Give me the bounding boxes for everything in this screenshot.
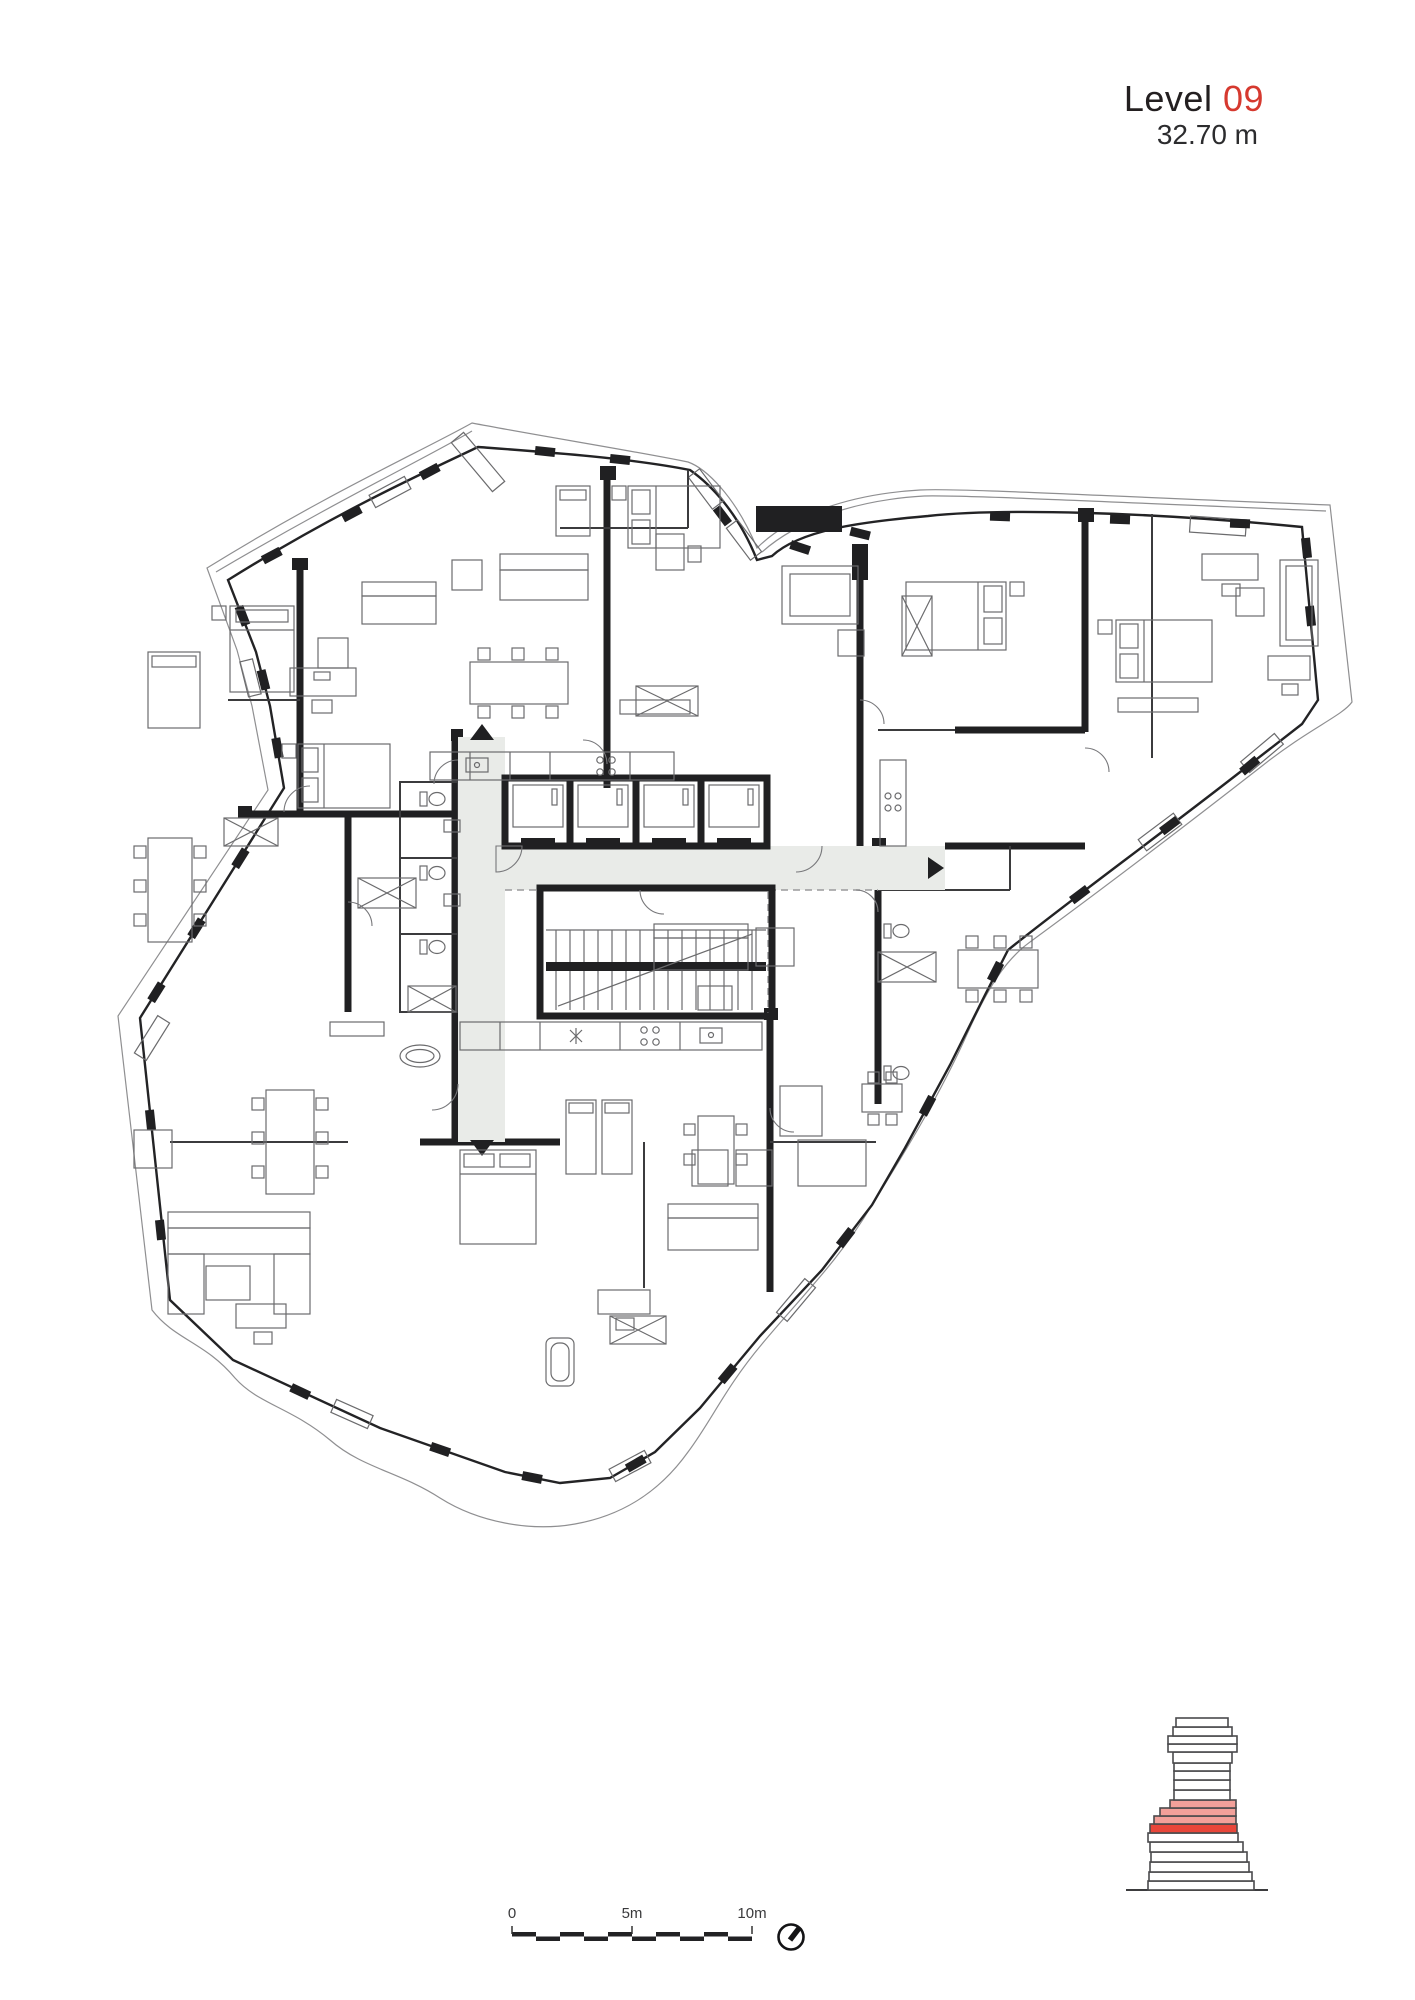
- scale-segment: [608, 1932, 632, 1937]
- scale-label-10m: 10m: [732, 1905, 772, 1922]
- scale-segment: [656, 1932, 680, 1937]
- north-arrow-icon: [779, 1925, 804, 1950]
- scale-segment: [728, 1937, 752, 1942]
- building-section-diagram: [1126, 1718, 1268, 1890]
- scale-segment: [584, 1937, 608, 1942]
- scale-segment: [680, 1937, 704, 1942]
- floor-plan-drawing: [0, 0, 1415, 2000]
- level-title: Level 09: [1040, 80, 1264, 118]
- section-lower-floors: [1148, 1833, 1254, 1890]
- section-current-floor: [1150, 1824, 1237, 1833]
- level-number: 09: [1223, 78, 1264, 119]
- scale-segment: [560, 1932, 584, 1937]
- page-title: Level 09 32.70 m: [1040, 80, 1264, 149]
- elevation-label: 32.70 m: [1040, 120, 1264, 149]
- bed-icon: [148, 652, 200, 728]
- scale-segment: [536, 1937, 560, 1942]
- section-upper-floors: [1168, 1718, 1237, 1800]
- level-title-prefix: Level: [1124, 78, 1213, 119]
- scale-segment: [704, 1932, 728, 1937]
- drawing-sheet: Level 09 32.70 m 0 5m 10m: [0, 0, 1415, 2000]
- scale-segment: [632, 1937, 656, 1942]
- scale-label-5m: 5m: [612, 1905, 652, 1922]
- scale-bar: [512, 1926, 752, 1941]
- scale-segment: [512, 1932, 536, 1937]
- dining-table-icon: [134, 838, 206, 942]
- section-highlighted-floors: [1150, 1800, 1237, 1833]
- scale-label-0: 0: [497, 1905, 527, 1922]
